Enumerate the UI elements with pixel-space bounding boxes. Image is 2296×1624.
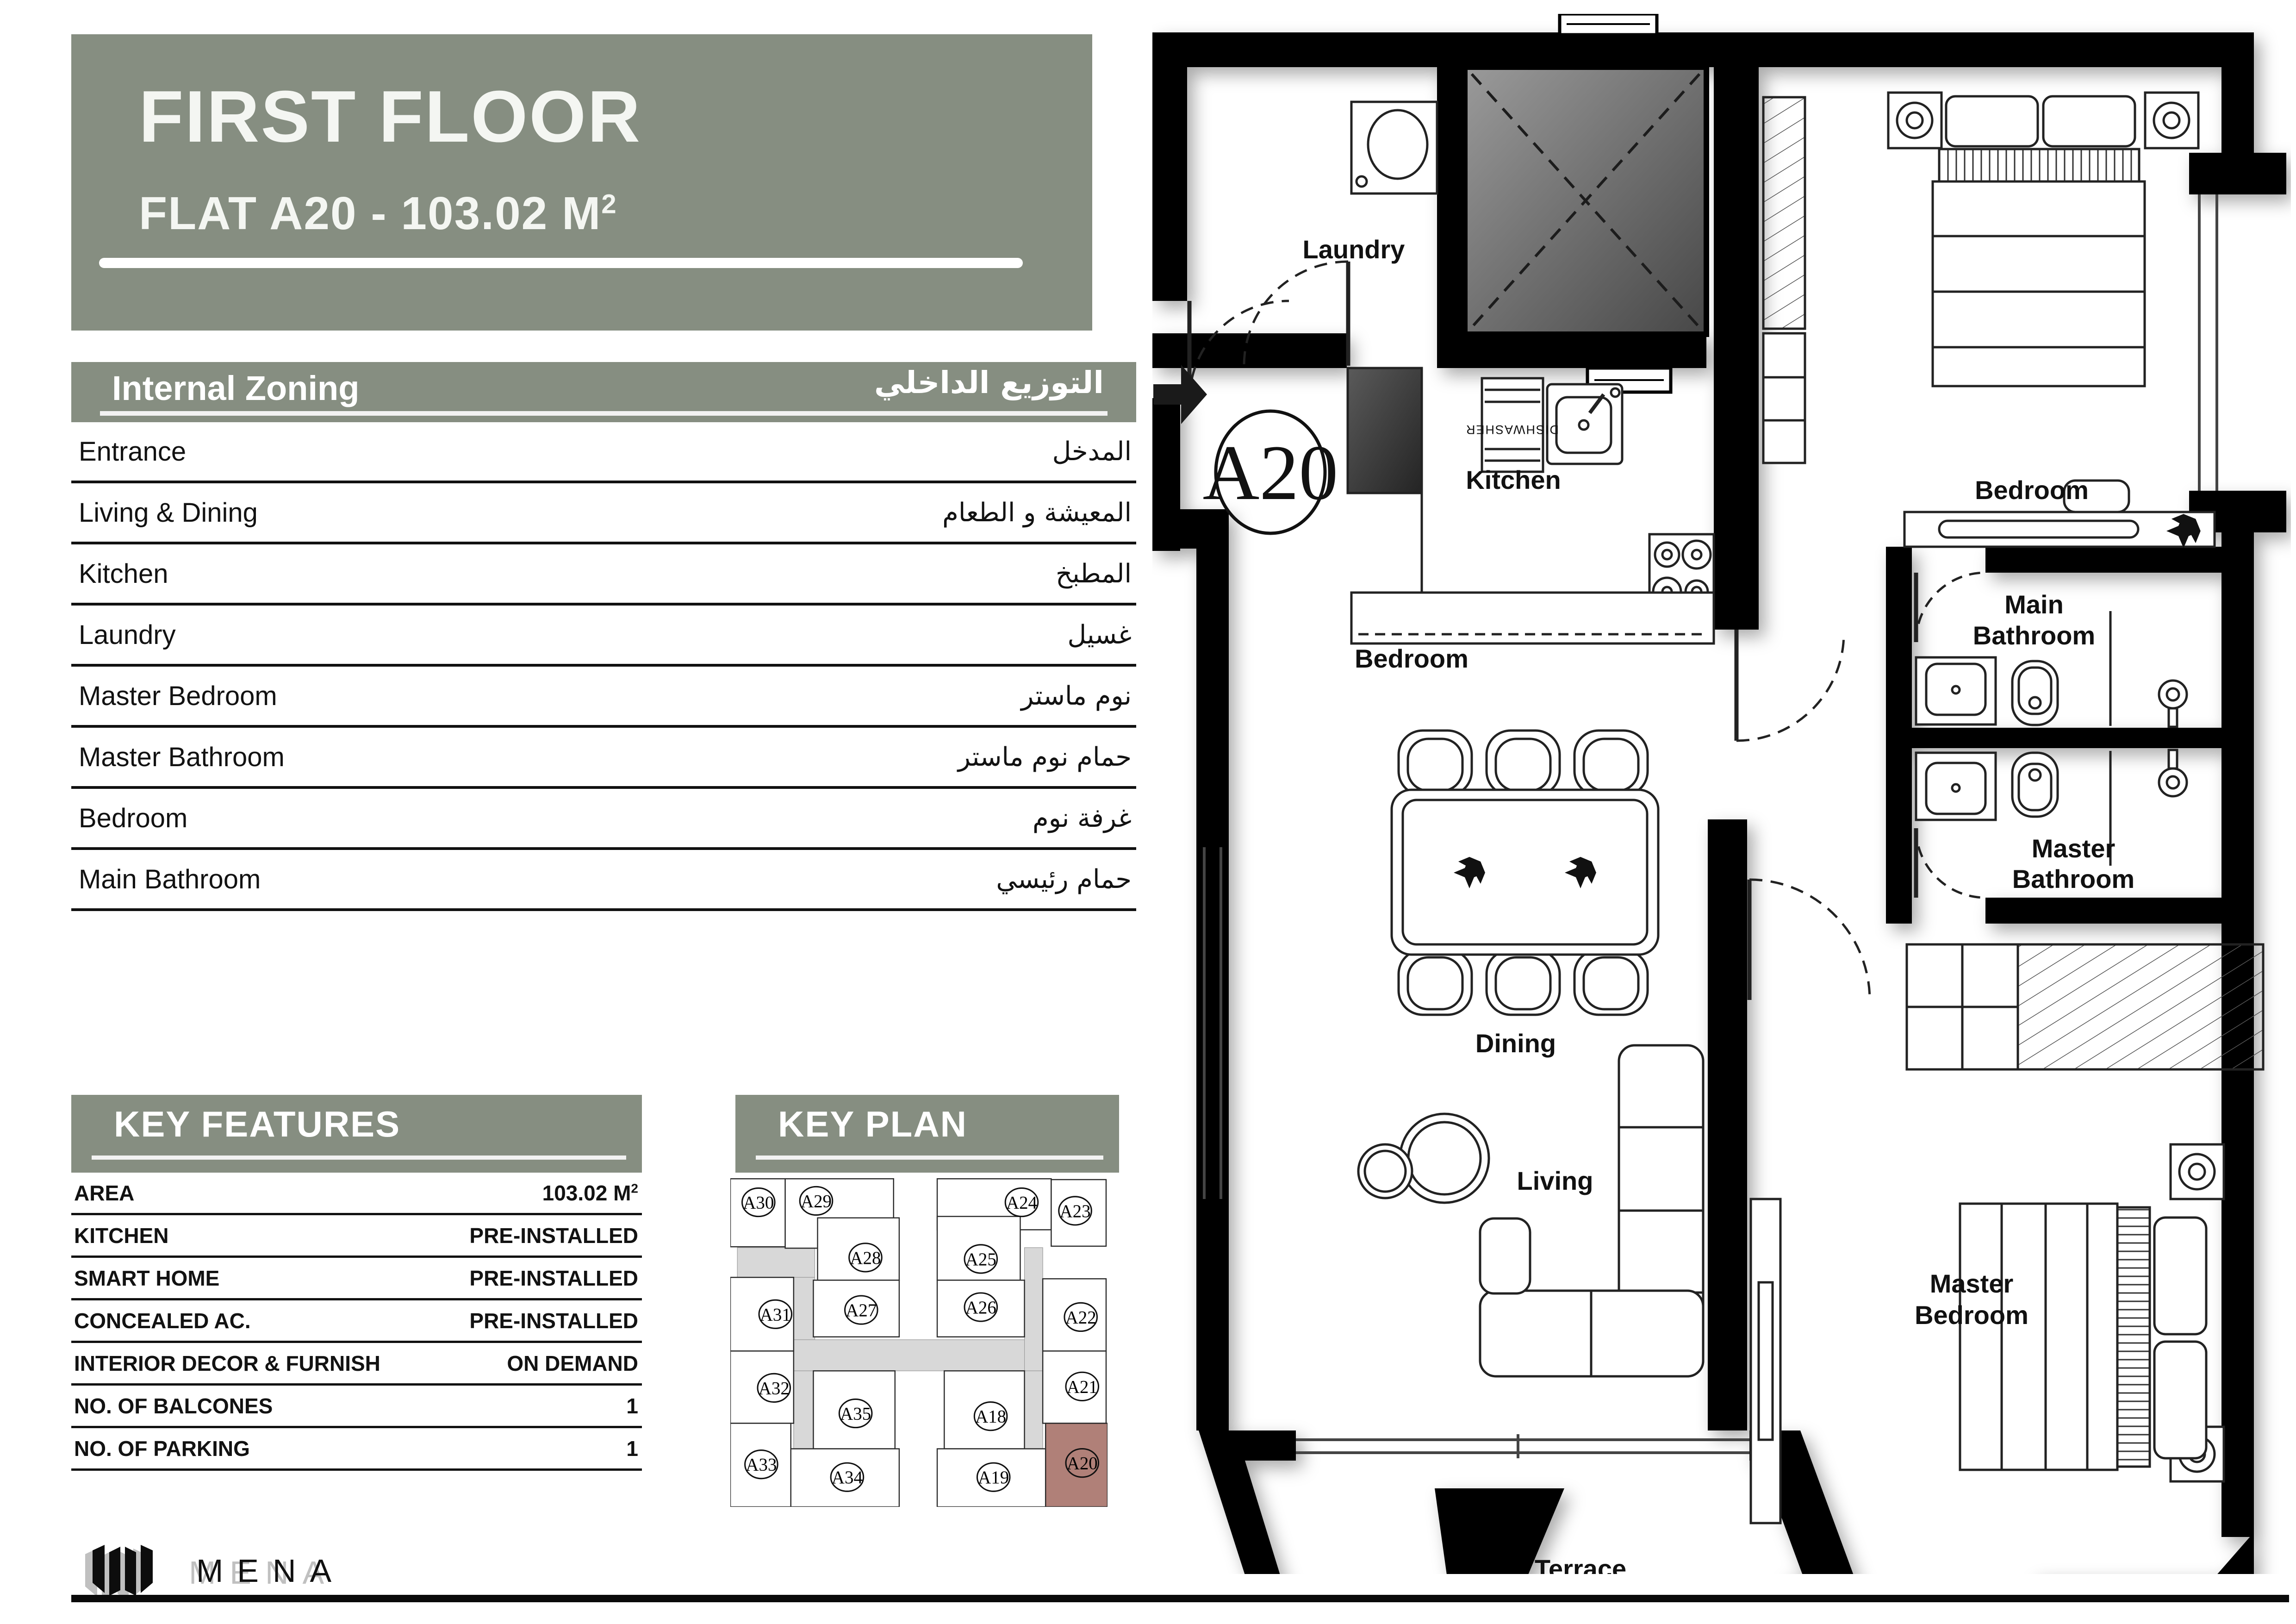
svg-text:A26: A26 — [965, 1298, 996, 1318]
wardrobe-top-bedroom — [1763, 97, 1805, 463]
label-laundry: Laundry — [1303, 235, 1405, 264]
page-title: FIRST FLOOR — [139, 75, 641, 159]
mena-logo-icon — [74, 1544, 180, 1597]
wall-right-upper — [2221, 32, 2254, 162]
zoning-label-ar: المعيشة و الطعام — [942, 498, 1136, 528]
door-bedroom-top — [1736, 630, 1844, 741]
door-master-bedroom — [1749, 880, 1870, 1000]
wall-top — [1152, 32, 2254, 67]
zoning-label-ar: المدخل — [1052, 437, 1136, 467]
zoning-label-en: Living & Dining — [71, 497, 258, 528]
unit-badge: A27 — [845, 1296, 878, 1324]
label-main-bath-2: Bathroom — [1973, 621, 2095, 650]
feature-value: PRE-INSTALLED — [469, 1309, 638, 1333]
bottom-rule — [71, 1595, 2289, 1602]
key-plan-section: KEY PLAN — [735, 1095, 1119, 1173]
dining-set — [1392, 731, 1658, 1015]
key-plan-title: KEY PLAN — [778, 1103, 967, 1145]
label-terrace: Terrace — [1535, 1554, 1626, 1574]
wall-kitchen-right — [1714, 67, 1759, 630]
sliding-door-terrace — [1296, 1434, 1749, 1458]
zoning-label-en: Master Bathroom — [71, 742, 285, 773]
feature-row: KITCHENPRE-INSTALLED — [71, 1215, 642, 1258]
zoning-label-en: Kitchen — [71, 558, 168, 589]
zoning-row: Master Bathroomحمام نوم ماستر — [71, 728, 1136, 789]
feature-row: CONCEALED AC.PRE-INSTALLED — [71, 1300, 642, 1343]
sofa — [1480, 1045, 1703, 1376]
feature-label: INTERIOR DECOR & FURNISH — [71, 1351, 380, 1376]
feature-value: ON DEMAND — [507, 1351, 638, 1375]
bed-comb — [1939, 149, 2139, 181]
feature-value: PRE-INSTALLED — [469, 1224, 638, 1248]
svg-text:A27: A27 — [846, 1300, 877, 1320]
unit-badge: A31 — [759, 1300, 792, 1328]
zoning-label-en: Master Bedroom — [71, 681, 277, 712]
unit-badge: A24 — [1005, 1188, 1038, 1216]
zoning-underline — [100, 411, 1108, 416]
zoning-row: Main Bathroomحمام رئيسي — [71, 850, 1136, 911]
unit-badge: A18 — [974, 1402, 1007, 1430]
brand-logo: MENA — [74, 1544, 345, 1597]
wall-entry-step1 — [1152, 398, 1180, 551]
unit-badge: A22 — [1064, 1303, 1097, 1331]
zoning-label-ar: نوم ماستر — [1021, 681, 1136, 711]
subtitle-superscript: 2 — [601, 189, 617, 219]
label-master-bath-1: Master — [2032, 834, 2116, 863]
zoning-title-en: Internal Zoning — [112, 369, 359, 408]
svg-text:A35: A35 — [840, 1404, 871, 1424]
feature-value: PRE-INSTALLED — [469, 1266, 638, 1290]
coffee-tables — [1358, 1114, 1489, 1203]
zoning-row: Bedroomغرفة نوم — [71, 789, 1136, 850]
window-bedroom-east — [2199, 194, 2217, 491]
unit-badge: A29 — [800, 1187, 833, 1215]
label-dishwasher: DISHWASHER — [1465, 423, 1559, 437]
svg-text:A30: A30 — [743, 1193, 774, 1212]
unit-marker: A20 — [1153, 365, 1338, 533]
wall-right-step-top — [2189, 153, 2286, 194]
zoning-row: Kitchenالمطبخ — [71, 544, 1136, 606]
unit-badge: A19 — [977, 1463, 1010, 1491]
zoning-row: Living & Diningالمعيشة و الطعام — [71, 483, 1136, 544]
svg-text:A21: A21 — [1067, 1377, 1098, 1397]
zoning-table: Entranceالمدخل Living & Diningالمعيشة و … — [71, 422, 1136, 911]
wall-laundry-bottom — [1152, 333, 1347, 368]
zoning-label-ar: حمام رئيسي — [996, 864, 1136, 894]
label-master-bath-2: Bathroom — [2012, 864, 2134, 893]
key-plan-map: A30 A29 A24 A23 A28 A25 A31 A27 A26 A22 … — [730, 1178, 1108, 1507]
wall-shaft-bottom — [1437, 333, 1706, 368]
feature-label: SMART HOME — [71, 1266, 219, 1291]
key-plan-header: KEY PLAN — [735, 1095, 1119, 1173]
internal-zoning-section: Internal Zoning التوزيع الداخلي Entrance… — [71, 362, 1136, 911]
label-dining: Dining — [1475, 1029, 1556, 1058]
header-card: FIRST FLOOR FLAT A20 - 103.02 M2 — [71, 34, 1092, 331]
label-kitchen: Kitchen — [1466, 465, 1561, 494]
door-master-bathroom — [1916, 828, 1985, 898]
unit-badge: A23 — [1059, 1197, 1092, 1225]
svg-text:A22: A22 — [1065, 1307, 1096, 1327]
zoning-row: Entranceالمدخل — [71, 422, 1136, 483]
label-bedroom-top: Bedroom — [1975, 475, 2089, 505]
label-main-bath-1: Main — [2004, 590, 2064, 619]
feature-sup: 2 — [631, 1181, 638, 1195]
zoning-label-en: Entrance — [71, 436, 186, 467]
svg-text:A32: A32 — [759, 1378, 790, 1398]
wall-bedroom-bottom — [1985, 547, 2221, 573]
unit-badge: A30 — [742, 1188, 775, 1216]
svg-text:A31: A31 — [760, 1305, 791, 1324]
bed-comb — [2117, 1207, 2150, 1467]
zoning-label-ar: المطبخ — [1056, 559, 1136, 589]
feature-label: NO. OF BALCONES — [71, 1393, 273, 1418]
wall-masterbath-bottom — [1985, 898, 2221, 924]
brochure-page: FIRST FLOOR FLAT A20 - 103.02 M2 Interna… — [0, 0, 2296, 1624]
label-master-bed-1: Master — [1930, 1269, 2014, 1298]
key-features-section: KEY FEATURES AREA103.02 M2 KITCHENPRE-IN… — [71, 1095, 642, 1471]
key-features-underline — [92, 1156, 626, 1160]
wall-left-upper — [1152, 32, 1187, 301]
unit-badge: A21 — [1066, 1372, 1099, 1400]
logo-text: MENA — [196, 1552, 345, 1589]
feature-value: 103.02 M — [542, 1181, 631, 1205]
svg-text:A19: A19 — [978, 1468, 1009, 1487]
svg-text:A33: A33 — [746, 1455, 777, 1475]
internal-zoning-header: Internal Zoning التوزيع الداخلي — [71, 362, 1136, 422]
bed-top-bedroom — [1888, 93, 2198, 386]
feature-row: INTERIOR DECOR & FURNISHON DEMAND — [71, 1343, 642, 1386]
key-features-header: KEY FEATURES — [71, 1095, 642, 1173]
flat-subtitle: FLAT A20 - 103.02 M2 — [139, 187, 617, 240]
feature-label: CONCEALED AC. — [71, 1308, 251, 1333]
pillow — [1946, 96, 2038, 146]
zoning-label-en: Bedroom — [71, 803, 187, 834]
zoning-label-en: Main Bathroom — [71, 864, 261, 895]
label-bedroom-mid: Bedroom — [1355, 644, 1468, 673]
label-master-bed-2: Bedroom — [1915, 1300, 2028, 1330]
feature-value: 1 — [626, 1394, 638, 1418]
service-shaft — [1465, 14, 1706, 392]
feature-label: AREA — [71, 1181, 134, 1206]
bed-blanket — [1960, 1204, 2117, 1470]
zoning-label-ar: حمام نوم ماستر — [958, 742, 1136, 772]
unit-label: A20 — [1203, 429, 1338, 516]
svg-text:A29: A29 — [801, 1191, 832, 1211]
feature-value: 1 — [626, 1437, 638, 1461]
zoning-title-ar: التوزيع الداخلي — [874, 365, 1104, 400]
feature-row: AREA103.02 M2 — [71, 1173, 642, 1215]
header-divider — [99, 258, 1023, 268]
feature-row: NO. OF PARKING1 — [71, 1428, 642, 1471]
unit-badge: A25 — [964, 1245, 997, 1273]
flat-subtitle-text: FLAT A20 - 103.02 M — [139, 187, 601, 239]
unit-badge: A35 — [839, 1399, 872, 1427]
unit-badge: A32 — [758, 1374, 790, 1402]
zoning-label-ar: غرفة نوم — [1033, 803, 1136, 833]
wall-living-master — [1708, 819, 1747, 1430]
pillow — [2154, 1342, 2206, 1458]
wall-shaft-left — [1437, 67, 1465, 333]
master-wardrobe — [1907, 944, 2263, 1069]
wall-left-lower — [1196, 546, 1229, 1430]
floor-plan: A20 Laundry Kitchen Bedroom Bedroom Main… — [1152, 14, 2291, 1574]
svg-text:A34: A34 — [832, 1468, 863, 1487]
wall-bath-divider — [1886, 728, 2221, 748]
feature-row: NO. OF BALCONES1 — [71, 1386, 642, 1428]
pillow — [2043, 96, 2135, 146]
svg-text:A24: A24 — [1006, 1193, 1037, 1212]
label-living: Living — [1517, 1166, 1593, 1195]
key-plan-underline — [756, 1156, 1103, 1160]
zoning-label-en: Laundry — [71, 619, 176, 650]
key-features-title: KEY FEATURES — [114, 1103, 400, 1145]
unit-badge: A34 — [831, 1463, 864, 1491]
unit-badge: A33 — [745, 1450, 778, 1479]
svg-text:A25: A25 — [965, 1249, 996, 1269]
wall-corner-cut — [2189, 1532, 2254, 1574]
pillow — [2154, 1218, 2206, 1334]
zoning-row: Master Bedroomنوم ماستر — [71, 667, 1136, 728]
feature-label: KITCHEN — [71, 1223, 168, 1248]
svg-text:A18: A18 — [975, 1406, 1006, 1426]
washing-machine — [1351, 102, 1437, 194]
key-features-table: AREA103.02 M2 KITCHENPRE-INSTALLED SMART… — [71, 1173, 642, 1471]
tv-unit — [1751, 1199, 1780, 1523]
svg-text:A23: A23 — [1060, 1201, 1091, 1221]
kitchen-fridge — [1348, 368, 1422, 493]
bed-blanket — [1933, 181, 2145, 386]
sofa-armrest — [1480, 1218, 1530, 1293]
feature-label: NO. OF PARKING — [71, 1436, 250, 1461]
svg-text:A28: A28 — [850, 1248, 881, 1268]
unit-badge: A28 — [849, 1243, 882, 1272]
zoning-label-ar: غسيل — [1067, 620, 1136, 650]
feature-row: SMART HOMEPRE-INSTALLED — [71, 1258, 642, 1300]
zoning-row: Laundryغسيل — [71, 606, 1136, 667]
svg-text:A20: A20 — [1067, 1453, 1098, 1473]
unit-badge: A26 — [964, 1293, 997, 1321]
